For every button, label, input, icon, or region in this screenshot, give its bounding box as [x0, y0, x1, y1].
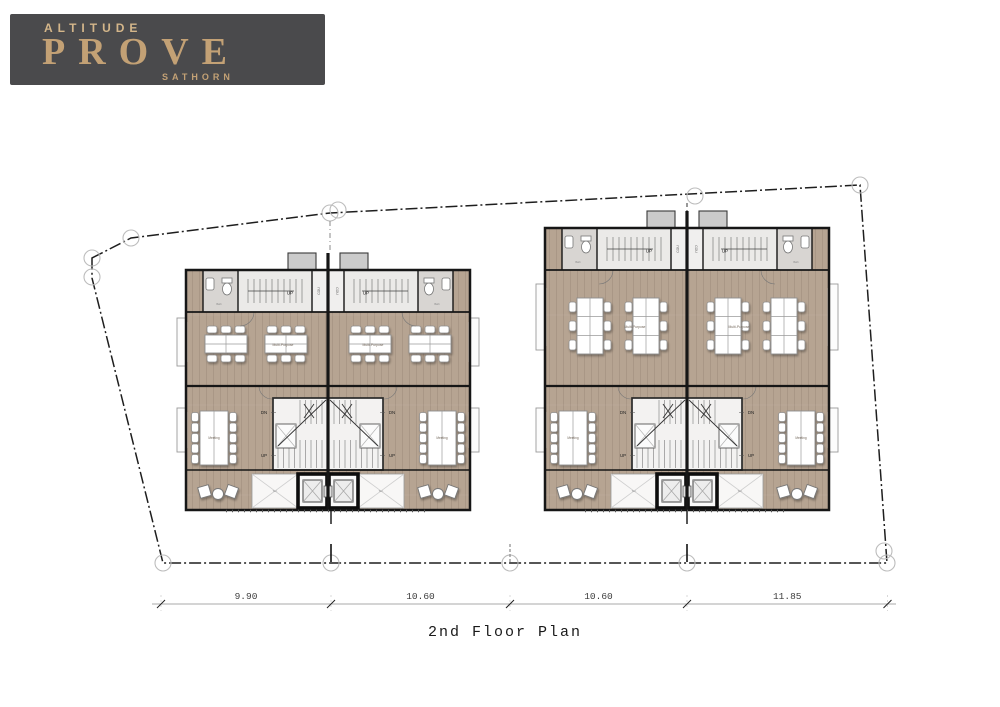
lounge-table: [572, 489, 583, 500]
court-label: COU: [694, 245, 698, 253]
chair: [779, 434, 786, 443]
side-balcony: [470, 318, 479, 366]
floor-plan-page: ALTITUDE PROVE SATHORN 9.9010.6010.6011.…: [0, 0, 1000, 707]
court-label: COU: [317, 287, 321, 295]
survey-marker: [876, 543, 892, 559]
dimension-line: 9.9010.6010.6011.85: [152, 591, 896, 611]
chair: [351, 355, 361, 362]
office-label: Multi-Purpose: [273, 343, 294, 347]
office-label: Multi-Purpose: [625, 325, 646, 329]
chair: [351, 326, 361, 333]
survey-marker: [687, 188, 703, 204]
court-label: COU: [335, 287, 339, 295]
chair: [192, 434, 199, 443]
sink: [565, 236, 573, 248]
chair: [707, 340, 714, 350]
down-label: DN: [389, 410, 395, 415]
terrace-label: Ter.: [379, 489, 384, 493]
side-balcony: [177, 408, 186, 452]
chair: [281, 355, 291, 362]
chair: [763, 340, 770, 350]
terrace-label: Ter.: [738, 489, 743, 493]
side-balcony: [177, 318, 186, 366]
chair: [420, 434, 427, 443]
survey-marker: [84, 269, 100, 285]
chair: [267, 326, 277, 333]
balcony-box: [647, 211, 675, 228]
chair: [551, 423, 558, 432]
chair: [425, 326, 435, 333]
chair: [458, 434, 465, 443]
building: COUUPBathMulti-PurposeMeetingDNUPTer.COU…: [177, 253, 479, 511]
chair: [817, 444, 824, 453]
chair: [365, 326, 375, 333]
chair: [425, 355, 435, 362]
lounge-table: [792, 489, 803, 500]
toilet: [223, 283, 232, 295]
meeting-label: Meeting: [795, 436, 807, 440]
up-label: UP: [363, 291, 369, 296]
rect-shape: [186, 270, 203, 312]
sink: [801, 236, 809, 248]
chair: [365, 355, 375, 362]
meeting-label: Meeting: [208, 436, 220, 440]
office-label: Multi-Purpose: [729, 325, 750, 329]
side-balcony: [829, 284, 838, 350]
chair: [235, 355, 245, 362]
meeting-label: Meeting: [567, 436, 579, 440]
chair: [192, 455, 199, 464]
toilet-tank: [222, 278, 232, 283]
chair: [589, 423, 596, 432]
survey-marker: [155, 555, 171, 571]
toilet: [784, 241, 793, 253]
chair: [569, 321, 576, 331]
meeting-label: Meeting: [436, 436, 448, 440]
side-balcony: [470, 408, 479, 452]
balcony-box: [288, 253, 316, 270]
chair: [817, 455, 824, 464]
chair: [779, 444, 786, 453]
chair: [458, 413, 465, 422]
up-label: UP: [389, 453, 395, 458]
chair: [707, 302, 714, 312]
chair: [551, 444, 558, 453]
balcony-box: [340, 253, 368, 270]
chair: [192, 423, 199, 432]
toilet-tank: [581, 236, 591, 241]
rect-shape: [545, 228, 562, 270]
chair: [551, 434, 558, 443]
chair: [798, 340, 805, 350]
chair: [420, 455, 427, 464]
up-label: UP: [748, 453, 754, 458]
terrace-label: Ter.: [273, 489, 278, 493]
floor-plan-canvas: 9.9010.6010.6011.85COUUPBathMulti-Purpos…: [0, 0, 1000, 707]
chair: [817, 423, 824, 432]
side-balcony: [829, 408, 838, 452]
chair: [230, 413, 237, 422]
lounge-chair: [198, 485, 212, 499]
lounge-table: [433, 489, 444, 500]
chair: [207, 355, 217, 362]
chair: [551, 455, 558, 464]
chair: [569, 302, 576, 312]
chair: [458, 455, 465, 464]
chair: [589, 434, 596, 443]
chair: [625, 340, 632, 350]
up-label: UP: [722, 249, 728, 254]
balcony-box: [699, 211, 727, 228]
chair: [420, 444, 427, 453]
chair: [763, 321, 770, 331]
sink: [206, 278, 214, 290]
dimension-label: 10.60: [406, 591, 435, 602]
rect-shape: [812, 228, 829, 270]
lounge-chair: [777, 485, 791, 499]
chair: [379, 355, 389, 362]
bath-label: Bath: [793, 260, 799, 264]
up-label: UP: [261, 453, 267, 458]
chair: [779, 455, 786, 464]
down-label: DN: [261, 410, 267, 415]
side-balcony: [536, 284, 545, 350]
chair: [779, 413, 786, 422]
down-label: DN: [620, 410, 626, 415]
chair: [604, 321, 611, 331]
chair: [379, 326, 389, 333]
chair: [589, 444, 596, 453]
chair: [192, 444, 199, 453]
chair: [589, 455, 596, 464]
chair: [569, 340, 576, 350]
dimension-label: 9.90: [235, 591, 258, 602]
bath-label: Bath: [216, 302, 222, 306]
building: COUUPBathMulti-PurposeMeetingDNUPTer.COU…: [536, 211, 838, 511]
court-label: COU: [676, 245, 680, 253]
chair: [230, 455, 237, 464]
chair: [295, 326, 305, 333]
terrace-label: Ter.: [632, 489, 637, 493]
up-label: UP: [646, 249, 652, 254]
chair: [295, 355, 305, 362]
chair: [411, 355, 421, 362]
chair: [192, 413, 199, 422]
chair: [660, 340, 667, 350]
chair: [221, 355, 231, 362]
chair: [230, 444, 237, 453]
chair: [551, 413, 558, 422]
sink: [442, 278, 450, 290]
chair: [235, 326, 245, 333]
chair: [660, 302, 667, 312]
plan-title: 2nd Floor Plan: [355, 624, 655, 641]
chair: [625, 302, 632, 312]
chair: [207, 326, 217, 333]
bath-label: Bath: [434, 302, 440, 306]
bath-label: Bath: [575, 260, 581, 264]
chair: [779, 423, 786, 432]
chair: [604, 340, 611, 350]
toilet-tank: [424, 278, 434, 283]
up-label: UP: [287, 291, 293, 296]
down-label: DN: [748, 410, 754, 415]
chair: [660, 321, 667, 331]
chair: [798, 302, 805, 312]
lounge-chair: [557, 485, 571, 499]
chair: [707, 321, 714, 331]
chair: [420, 423, 427, 432]
dimension-label: 11.85: [773, 591, 802, 602]
toilet: [582, 241, 591, 253]
toilet-tank: [783, 236, 793, 241]
chair: [604, 302, 611, 312]
chair: [817, 434, 824, 443]
dimension-label: 10.60: [584, 591, 613, 602]
rect-shape: [453, 270, 470, 312]
chair: [458, 444, 465, 453]
chair: [420, 413, 427, 422]
chair: [267, 355, 277, 362]
chair: [458, 423, 465, 432]
chair: [798, 321, 805, 331]
chair: [230, 423, 237, 432]
chair: [221, 326, 231, 333]
chair: [439, 326, 449, 333]
chair: [763, 302, 770, 312]
office-label: Multi-Purpose: [363, 343, 384, 347]
chair: [742, 302, 749, 312]
chair: [439, 355, 449, 362]
chair: [742, 340, 749, 350]
up-label: UP: [620, 453, 626, 458]
lounge-table: [213, 489, 224, 500]
chair: [411, 326, 421, 333]
chair: [817, 413, 824, 422]
toilet: [425, 283, 434, 295]
chair: [589, 413, 596, 422]
chair: [230, 434, 237, 443]
side-balcony: [536, 408, 545, 452]
lounge-chair: [418, 485, 432, 499]
chair: [281, 326, 291, 333]
